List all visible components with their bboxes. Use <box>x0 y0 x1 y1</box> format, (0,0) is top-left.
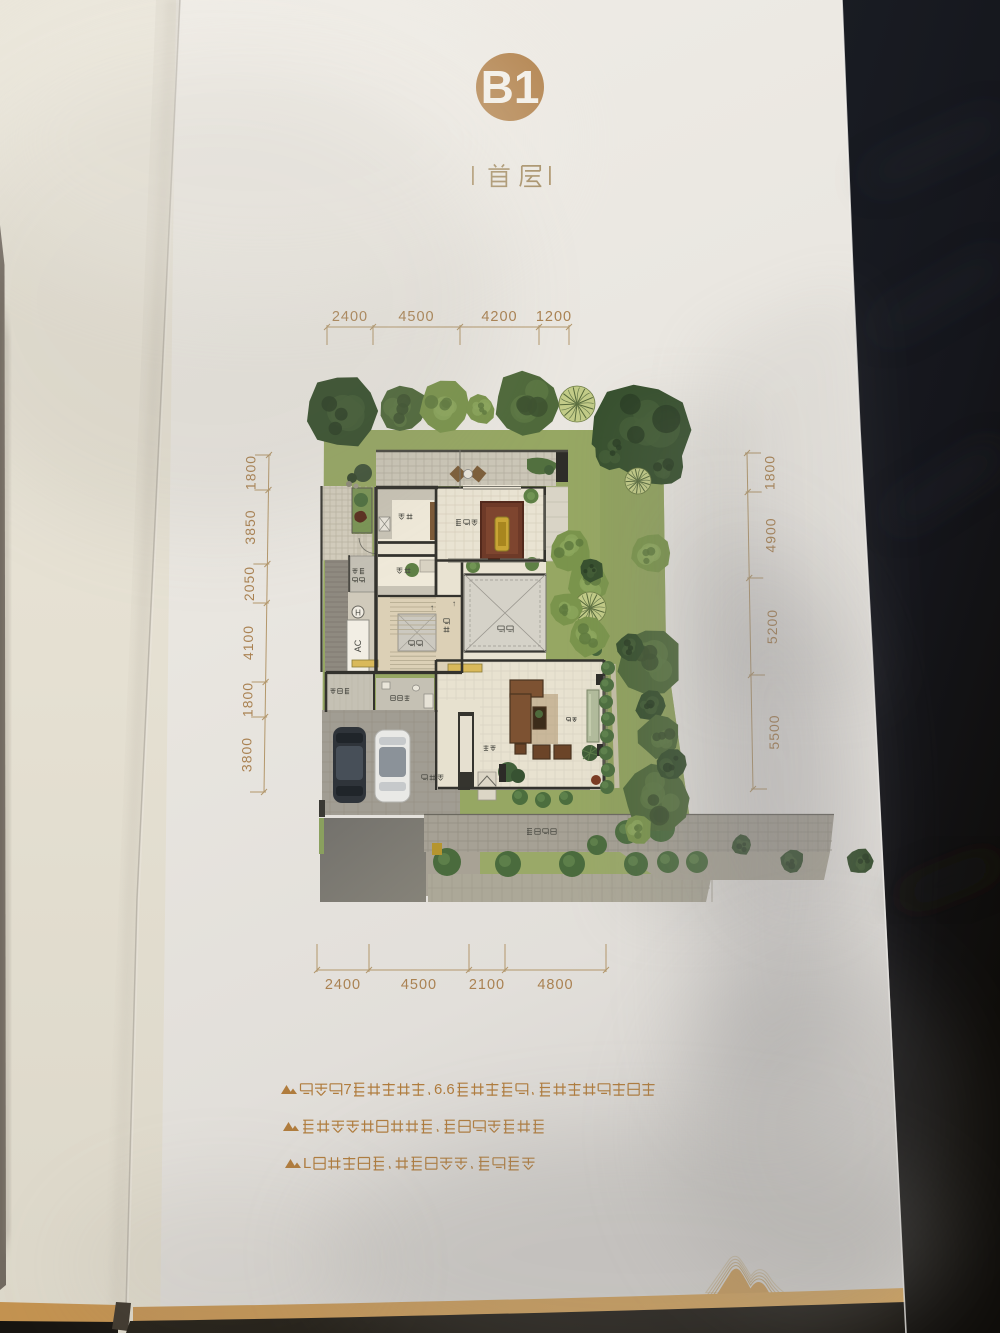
svg-text:H: H <box>355 609 361 618</box>
svg-text:1800: 1800 <box>239 682 255 717</box>
svg-text:AC: AC <box>353 639 363 652</box>
svg-text:6.6: 6.6 <box>434 1082 455 1098</box>
svg-text:4100: 4100 <box>240 625 256 660</box>
svg-text:L: L <box>303 1156 311 1172</box>
svg-text:1200: 1200 <box>536 309 572 325</box>
svg-text:7: 7 <box>343 1082 351 1098</box>
svg-text:2100: 2100 <box>469 977 505 993</box>
svg-text:2400: 2400 <box>325 977 361 993</box>
svg-text:↑: ↑ <box>452 599 456 608</box>
svg-text:4500: 4500 <box>401 977 437 993</box>
svg-text:3800: 3800 <box>239 737 255 772</box>
svg-text:2050: 2050 <box>241 566 257 601</box>
svg-text:↑: ↑ <box>430 603 434 612</box>
svg-text:4800: 4800 <box>537 977 573 993</box>
